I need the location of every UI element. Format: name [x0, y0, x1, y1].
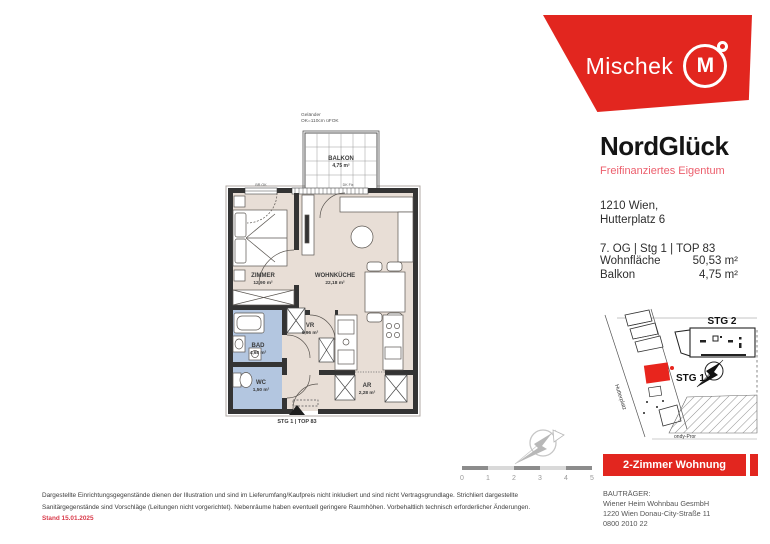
address-line-1: 1210 Wien, [600, 200, 770, 214]
windows [245, 188, 368, 194]
developer-info: BAUTRÄGER: Wiener Heim Wohnbau GesmbH 12… [603, 489, 710, 529]
site-buildings-row [625, 310, 663, 352]
brand-name: Mischek [586, 53, 674, 80]
street-label-hutterplatz: Hutterplatz [613, 384, 627, 411]
room-label-vr: VR [306, 323, 315, 329]
scale-tick: 1 [486, 475, 490, 482]
area-value: 4,75 m² [699, 269, 738, 283]
railing-note-line1: Geländer [301, 112, 321, 118]
stg2-label: STG 2 [708, 316, 737, 327]
scale-tick: 2 [512, 475, 516, 482]
site-plan: STG 2 STG 1 Hutterplatz ondy-Pror [597, 307, 763, 449]
site-hatched-area [669, 395, 757, 433]
street-label-bottom: ondy-Pror [674, 434, 696, 440]
toilet [233, 373, 252, 388]
stg1-label: STG 1 [676, 373, 705, 384]
trademark-dot-icon [717, 41, 728, 52]
project-address: 1210 Wien, Hutterplatz 6 [600, 200, 770, 227]
room-label-bad: BAD [252, 343, 266, 349]
area-row-balkon: Balkon 4,75 m² [600, 269, 738, 283]
balcony-area: 4,75 m² [332, 163, 350, 169]
developer-heading: BAUTRÄGER: [603, 489, 710, 499]
kitchen-block-stove [383, 315, 403, 370]
scale-tick: 5 [590, 475, 594, 482]
scale-bar: 0 1 2 3 4 5 [460, 466, 594, 482]
entrance-label: STG 1 | TOP 83 [277, 419, 316, 425]
nightstand [234, 270, 245, 281]
room-area-wohnkueche: 22,18 m² [325, 280, 345, 286]
bathtub [234, 313, 264, 333]
room-area-wc: 1,50 m² [253, 387, 270, 393]
project-subtitle: Freifinanziertes Eigentum [600, 165, 770, 177]
unit-type-label: 2-Zimmer Wohnung [623, 459, 726, 471]
window-note-left: BR.OK [255, 183, 267, 187]
wardrobe [233, 290, 294, 305]
scale-tick: 4 [564, 475, 568, 482]
disclaimer: Dargestellte Einrichtungsgegenstände die… [42, 490, 602, 525]
bed [233, 210, 287, 266]
floor-plan: STG 1 | TOP 83 Geländer OK=110cm üFOK BR… [215, 100, 430, 445]
address-line-2: Hutterplatz 6 [600, 214, 770, 228]
banner-end-block [750, 454, 758, 476]
scale-tick: 3 [538, 475, 542, 482]
room-label-zimmer: ZIMMER [251, 273, 275, 279]
monogram-letter: M [697, 54, 715, 78]
disclaimer-line-2: Sanitärgegenstände sind Vorschläge (Leit… [42, 502, 602, 514]
site-stg2-building [675, 328, 755, 357]
area-row-wohnflaeche: Wohnfläche 50,53 m² [600, 255, 738, 269]
compass-and-scale: 0 1 2 3 4 5 [440, 418, 605, 493]
window-note-right: DK Fix [343, 183, 354, 187]
developer-phone: 0800 2010 22 [603, 519, 710, 529]
mischek-m-icon: M [683, 44, 727, 88]
scale-tick: 0 [460, 475, 464, 482]
railing-note-line2: OK=110cm üFOK [301, 118, 339, 124]
room-area-vr: 6,96 m² [302, 330, 319, 336]
unit-line: 7. OG | Stg 1 | TOP 83 [600, 243, 770, 255]
room-label-wohnkueche: WOHNKÜCHE [315, 272, 355, 279]
tv-board [302, 195, 314, 255]
disclaimer-line-1: Dargestellte Einrichtungsgegenstände die… [42, 490, 602, 502]
site-stg1-building [643, 362, 681, 426]
room-label-wc: WC [256, 380, 267, 386]
floorplan-document-page: Mischek M NordGlück Freifinanziertes Eig… [0, 0, 770, 544]
kitchen-counter-right [398, 212, 413, 262]
area-value: 50,53 m² [693, 255, 738, 269]
nightstand [234, 196, 245, 207]
area-label: Balkon [600, 269, 635, 283]
unit-type-banner: 2-Zimmer Wohnung [603, 454, 746, 476]
washbasin [233, 336, 245, 352]
mischek-logo: Mischek M [543, 15, 752, 115]
kitchen-block-left [335, 315, 357, 370]
north-arrow-icon [515, 430, 564, 464]
project-title: NordGlück [600, 131, 770, 162]
room-area-zimmer: 12,90 m² [253, 280, 273, 286]
room-area-bad: 4,68 m² [250, 350, 267, 356]
room-label-ar: AR [363, 383, 372, 389]
kitchen-counter-top [340, 197, 413, 212]
developer-address: 1220 Wien Donau-City-Straße 11 [603, 509, 710, 519]
unit-location-marker [644, 362, 670, 383]
balcony-label: BALKON [328, 156, 354, 162]
round-table [351, 226, 373, 248]
document-date: Stand 15.01.2025 [42, 513, 602, 525]
room-area-ar: 2,28 m² [359, 390, 376, 396]
project-info-panel: NordGlück Freifinanziertes Eigentum 1210… [600, 131, 770, 282]
developer-name: Wiener Heim Wohnbau GesmbH [603, 499, 710, 509]
area-label: Wohnfläche [600, 255, 661, 269]
